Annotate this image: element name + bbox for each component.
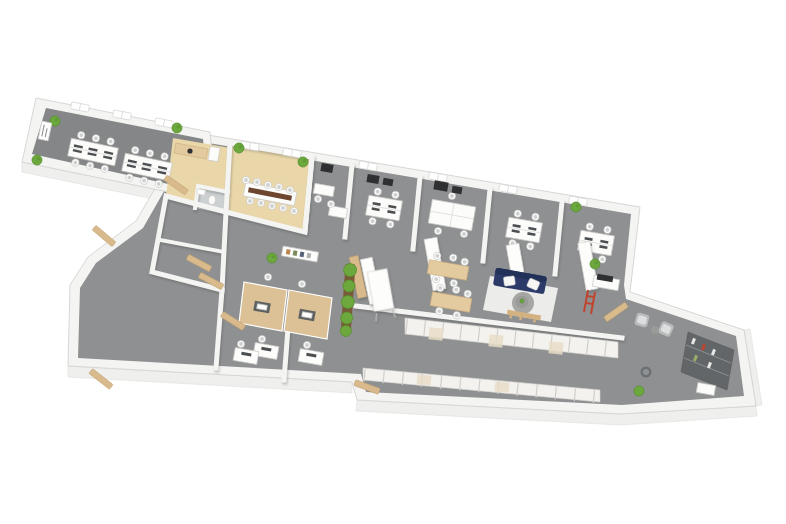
locker-accent — [428, 327, 443, 340]
office-chair — [641, 367, 652, 378]
beanbag — [634, 386, 644, 396]
locker-accent — [417, 374, 432, 385]
side-table — [651, 326, 659, 334]
floorplan-image — [0, 0, 786, 524]
plant — [298, 157, 308, 167]
chair — [257, 199, 264, 206]
chair — [286, 186, 293, 193]
plant — [267, 253, 277, 263]
locker-accent — [488, 334, 503, 347]
plant — [32, 155, 42, 165]
chair — [314, 195, 321, 202]
wood-door — [92, 225, 116, 246]
chair — [264, 181, 271, 188]
chair — [303, 341, 310, 348]
chair — [279, 204, 286, 211]
chair — [253, 178, 260, 185]
chair — [434, 227, 441, 234]
chair — [460, 230, 467, 237]
cooktop — [187, 148, 192, 153]
fridge — [208, 146, 220, 162]
chair — [268, 202, 275, 209]
plant — [571, 202, 581, 212]
chair — [275, 183, 282, 190]
chair — [246, 197, 253, 204]
plant — [590, 259, 600, 269]
table-plant — [520, 299, 524, 303]
chair — [237, 340, 244, 347]
plant — [234, 143, 244, 153]
chair — [290, 207, 297, 214]
sink — [197, 189, 206, 195]
chair — [242, 176, 249, 183]
chair — [298, 280, 305, 287]
chair — [258, 335, 265, 342]
plant — [172, 123, 182, 133]
locker-accent — [495, 381, 510, 392]
chair — [448, 192, 455, 199]
chair — [264, 273, 271, 280]
chair — [327, 200, 334, 207]
floorplan-svg — [0, 0, 786, 524]
locker-accent — [548, 341, 563, 354]
